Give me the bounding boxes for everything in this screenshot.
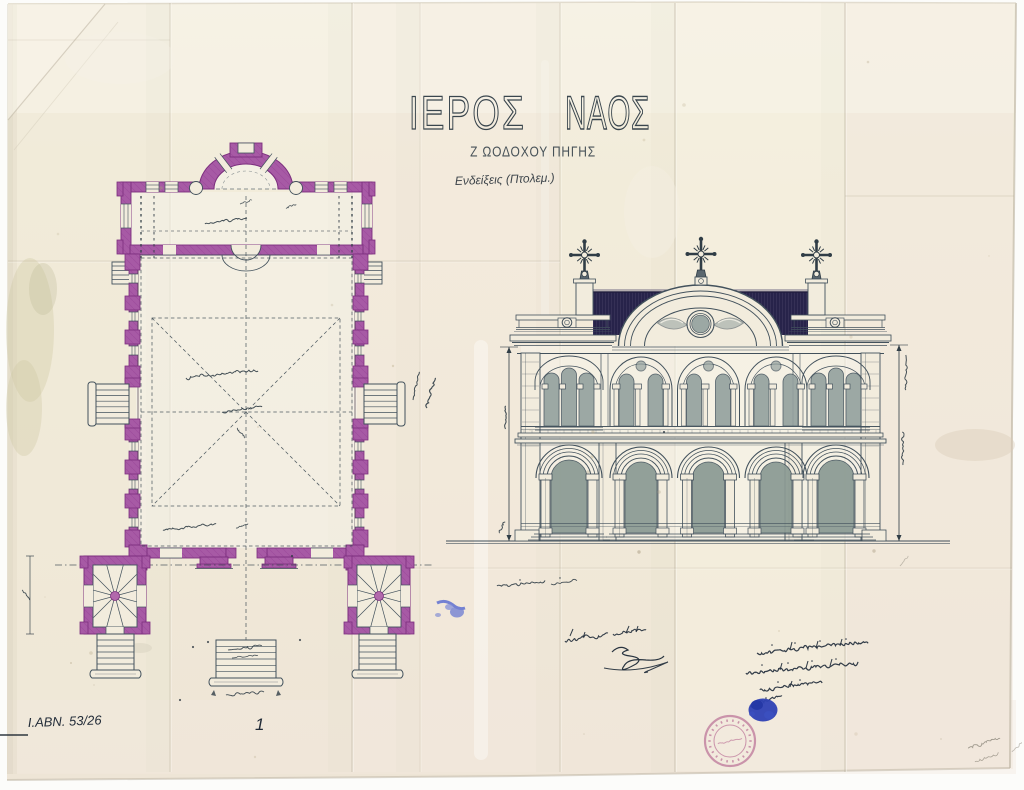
svg-text:Z ΩΟΔΟΧΟΥ ΠΗΓΗΣ: Z ΩΟΔΟΧΟΥ ΠΗΓΗΣ <box>470 143 596 160</box>
svg-text:Ι.ΑΒΝ. 53/26: Ι.ΑΒΝ. 53/26 <box>28 712 103 730</box>
svg-text:IEPOΣ: IEPOΣ <box>409 86 526 139</box>
svg-text:1: 1 <box>255 715 264 734</box>
svg-text:NAOΣ: NAOΣ <box>565 87 650 140</box>
